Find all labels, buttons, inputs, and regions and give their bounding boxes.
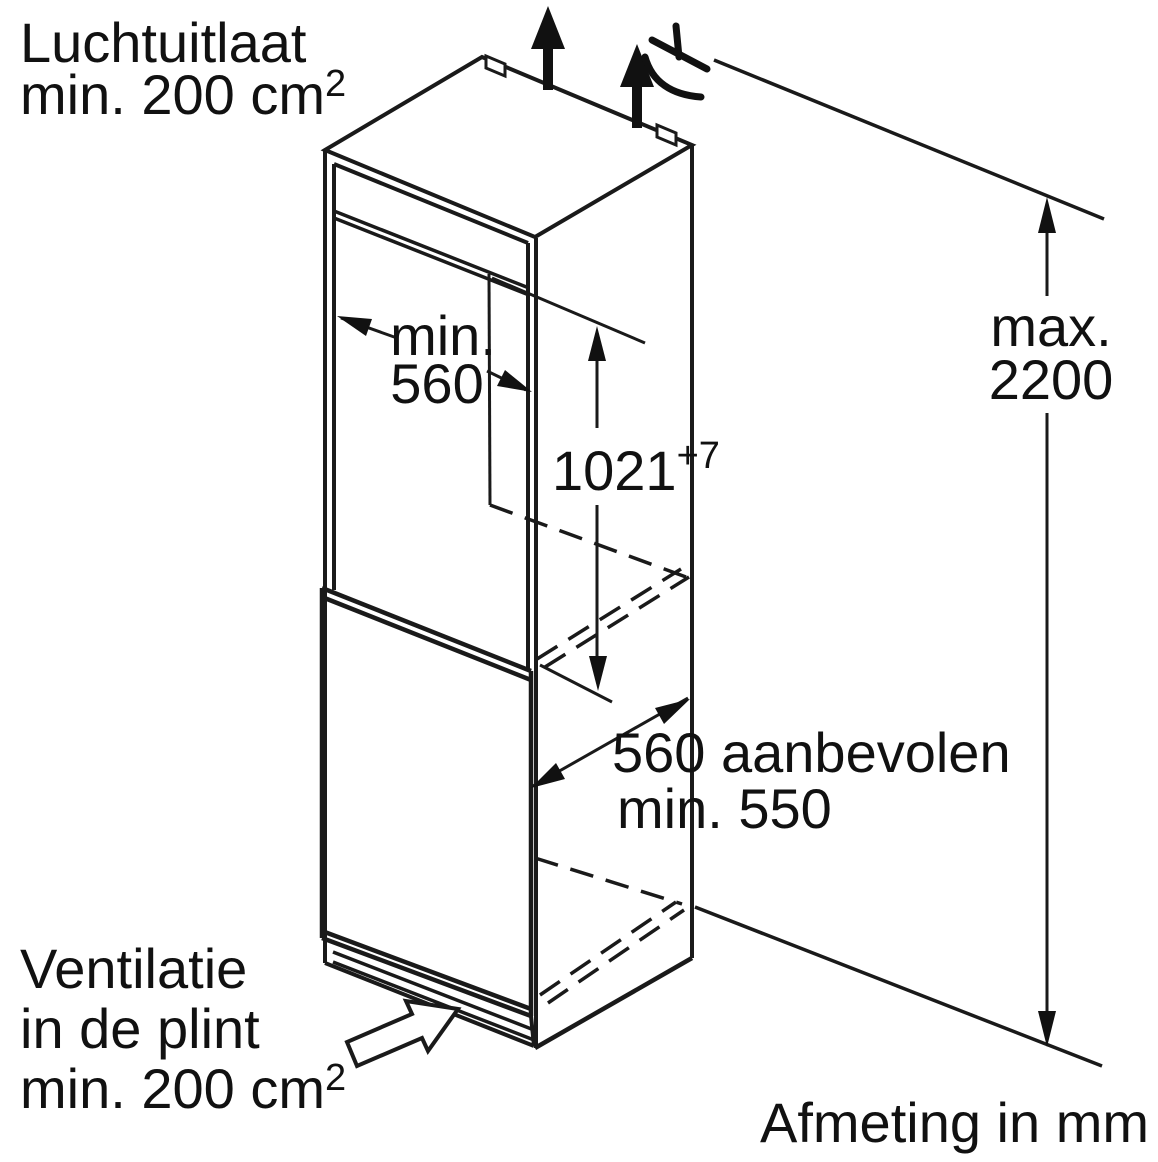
- dimension-niche-height: 1021+7: [552, 326, 720, 691]
- depth-minimum: min. 550: [617, 777, 832, 840]
- units-note: Afmeting in mm: [760, 1091, 1149, 1154]
- diagram-canvas: max. 2200 min. 560 1021+7 560 aanbevolen…: [0, 0, 1158, 1162]
- floor-line: [695, 907, 1102, 1066]
- cabinet: [322, 56, 692, 1048]
- plinth-airflow-arrow-icon: [347, 1001, 458, 1066]
- niche-width-value: 560: [390, 352, 483, 415]
- power-cable-icon: [645, 26, 707, 97]
- appliance-door: [322, 588, 531, 1016]
- dimension-depth: 560 aanbevolen min. 550: [531, 698, 1011, 840]
- plinth-vent-line1: Ventilatie: [20, 937, 247, 1000]
- plinth-vent-line2: in de plint: [20, 997, 260, 1060]
- air-outlet-line2: min. 200 cm2: [20, 63, 346, 126]
- side-bottom-edge: [535, 958, 692, 1048]
- label-air-outlet: Luchtuitlaat min. 200 cm2: [20, 11, 346, 126]
- ceiling-line: [714, 60, 1104, 219]
- front-frame: [334, 164, 528, 670]
- airflow-up-arrow-icon: [531, 6, 565, 90]
- niche-ceiling-ref-line: [492, 278, 645, 343]
- depth-recommended: 560 aanbevolen: [612, 721, 1011, 784]
- niche-height-value: 1021+7: [552, 435, 720, 502]
- max-height-value: 2200: [989, 348, 1114, 411]
- label-plinth-vent: Ventilatie in de plint min. 200 cm2: [20, 937, 346, 1120]
- plinth-vent-line3: min. 200 cm2: [20, 1057, 346, 1120]
- dimension-max-height: max. 2200: [989, 197, 1114, 1047]
- installation-diagram: max. 2200 min. 560 1021+7 560 aanbevolen…: [0, 0, 1158, 1162]
- dimension-niche-width: min. 560: [337, 304, 532, 415]
